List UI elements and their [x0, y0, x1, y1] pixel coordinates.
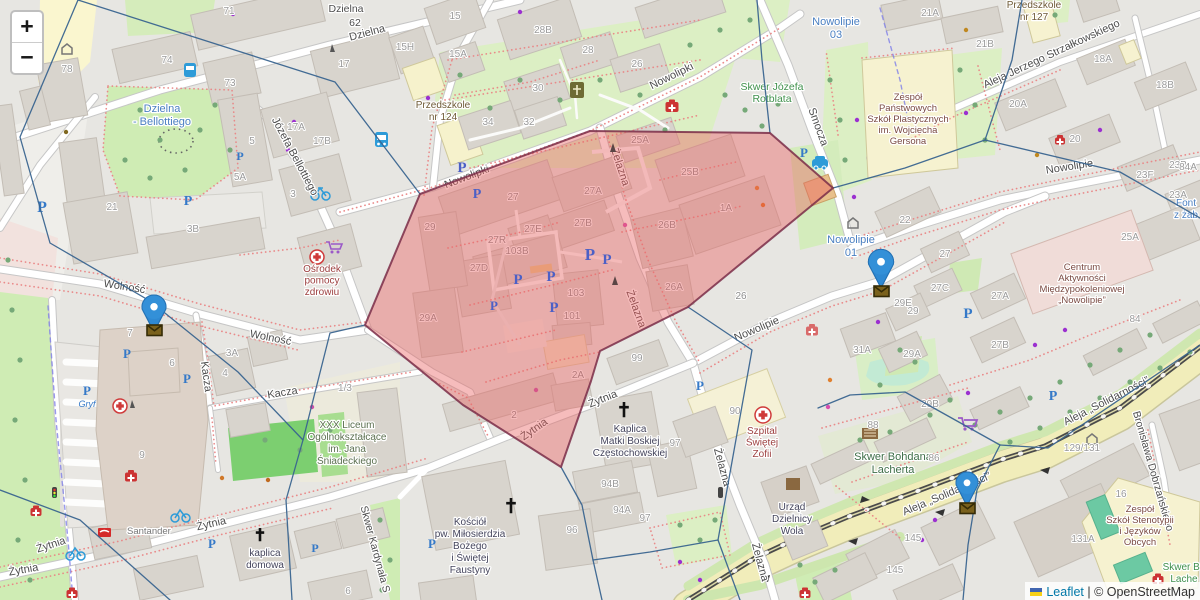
svg-text:P: P	[513, 272, 522, 288]
svg-text:P: P	[83, 383, 91, 398]
svg-text:28B: 28B	[534, 25, 552, 36]
svg-text:3B: 3B	[187, 224, 200, 235]
svg-text:P: P	[457, 160, 466, 176]
svg-text:29B: 29B	[921, 399, 939, 410]
svg-text:P: P	[602, 252, 611, 268]
svg-text:99: 99	[631, 353, 643, 364]
svg-text:15: 15	[449, 11, 461, 22]
svg-text:129/131: 129/131	[1064, 443, 1101, 454]
svg-text:17A: 17A	[287, 122, 305, 133]
svg-text:25A: 25A	[1121, 232, 1139, 243]
svg-text:97: 97	[669, 438, 681, 449]
svg-text:17B: 17B	[313, 136, 331, 147]
svg-text:5: 5	[249, 136, 255, 147]
svg-text:97: 97	[639, 513, 651, 524]
svg-text:P: P	[490, 298, 498, 313]
svg-text:74: 74	[161, 55, 173, 66]
svg-text:1/3: 1/3	[338, 383, 352, 394]
svg-text:6: 6	[345, 586, 351, 597]
svg-text:P: P	[184, 194, 193, 209]
svg-text:P: P	[585, 245, 595, 264]
svg-text:P: P	[963, 306, 972, 322]
svg-text:P: P	[800, 145, 808, 160]
svg-text:5A: 5A	[234, 172, 247, 183]
svg-text:21: 21	[106, 202, 118, 213]
svg-text:P: P	[696, 378, 704, 393]
svg-text:15H: 15H	[396, 42, 414, 53]
svg-text:84A: 84A	[1179, 162, 1197, 173]
svg-text:Gryf: Gryf	[79, 399, 97, 409]
svg-text:P: P	[546, 269, 555, 285]
svg-text:P: P	[208, 536, 216, 551]
svg-text:P: P	[549, 300, 558, 316]
svg-text:23A: 23A	[1169, 190, 1187, 201]
svg-text:27: 27	[939, 249, 951, 260]
svg-text:P: P	[311, 541, 318, 555]
svg-text:P: P	[473, 187, 482, 202]
svg-text:20: 20	[1069, 134, 1081, 145]
svg-text:3A: 3A	[226, 348, 239, 359]
svg-text:34: 34	[482, 117, 494, 128]
svg-text:145: 145	[887, 565, 904, 576]
svg-text:88: 88	[867, 420, 879, 431]
svg-text:26: 26	[631, 59, 643, 70]
svg-text:145: 145	[905, 533, 922, 544]
svg-text:7: 7	[127, 328, 133, 339]
svg-text:131A: 131A	[1071, 534, 1095, 545]
svg-text:27C: 27C	[931, 283, 949, 294]
svg-text:22: 22	[899, 215, 911, 226]
svg-text:78: 78	[61, 64, 73, 75]
svg-text:29A: 29A	[903, 349, 921, 360]
svg-text:23F: 23F	[1136, 170, 1153, 181]
svg-text:94B: 94B	[601, 479, 619, 490]
svg-text:15A: 15A	[449, 49, 467, 60]
svg-text:21A: 21A	[921, 8, 939, 19]
svg-text:86: 86	[928, 453, 940, 464]
svg-text:P: P	[1049, 389, 1058, 404]
svg-text:29E: 29E	[894, 298, 912, 309]
svg-text:20A: 20A	[1009, 99, 1027, 110]
svg-text:90: 90	[729, 406, 741, 417]
svg-text:30: 30	[532, 83, 544, 94]
svg-text:71: 71	[223, 6, 235, 17]
svg-text:P: P	[123, 346, 131, 361]
svg-text:32: 32	[523, 117, 535, 128]
svg-text:27A: 27A	[991, 291, 1009, 302]
svg-text:kaplicadomowa: kaplicadomowa	[246, 548, 284, 571]
svg-text:Ośrodekpomocyzdrowiu: Ośrodekpomocyzdrowiu	[303, 264, 342, 298]
svg-text:P: P	[183, 371, 191, 386]
svg-text:62: 62	[349, 17, 361, 29]
svg-text:31A: 31A	[853, 345, 871, 356]
svg-text:6: 6	[169, 358, 175, 369]
svg-text:21B: 21B	[976, 39, 994, 50]
svg-text:94A: 94A	[613, 505, 631, 516]
svg-text:3: 3	[290, 189, 296, 200]
svg-text:16: 16	[1115, 489, 1127, 500]
svg-text:28: 28	[582, 45, 594, 56]
svg-text:18A: 18A	[1094, 54, 1112, 65]
svg-text:27B: 27B	[991, 340, 1009, 351]
svg-text:26: 26	[735, 291, 747, 302]
svg-text:Dzielna: Dzielna	[328, 3, 363, 15]
svg-text:4: 4	[222, 368, 228, 379]
svg-text:9: 9	[139, 450, 145, 461]
svg-text:P: P	[236, 149, 243, 163]
svg-text:73: 73	[224, 78, 236, 89]
svg-text:84: 84	[1129, 314, 1141, 325]
svg-text:18B: 18B	[1156, 80, 1174, 91]
svg-text:96: 96	[566, 525, 578, 536]
svg-text:Santander: Santander	[127, 526, 171, 537]
svg-text:17: 17	[338, 59, 350, 70]
